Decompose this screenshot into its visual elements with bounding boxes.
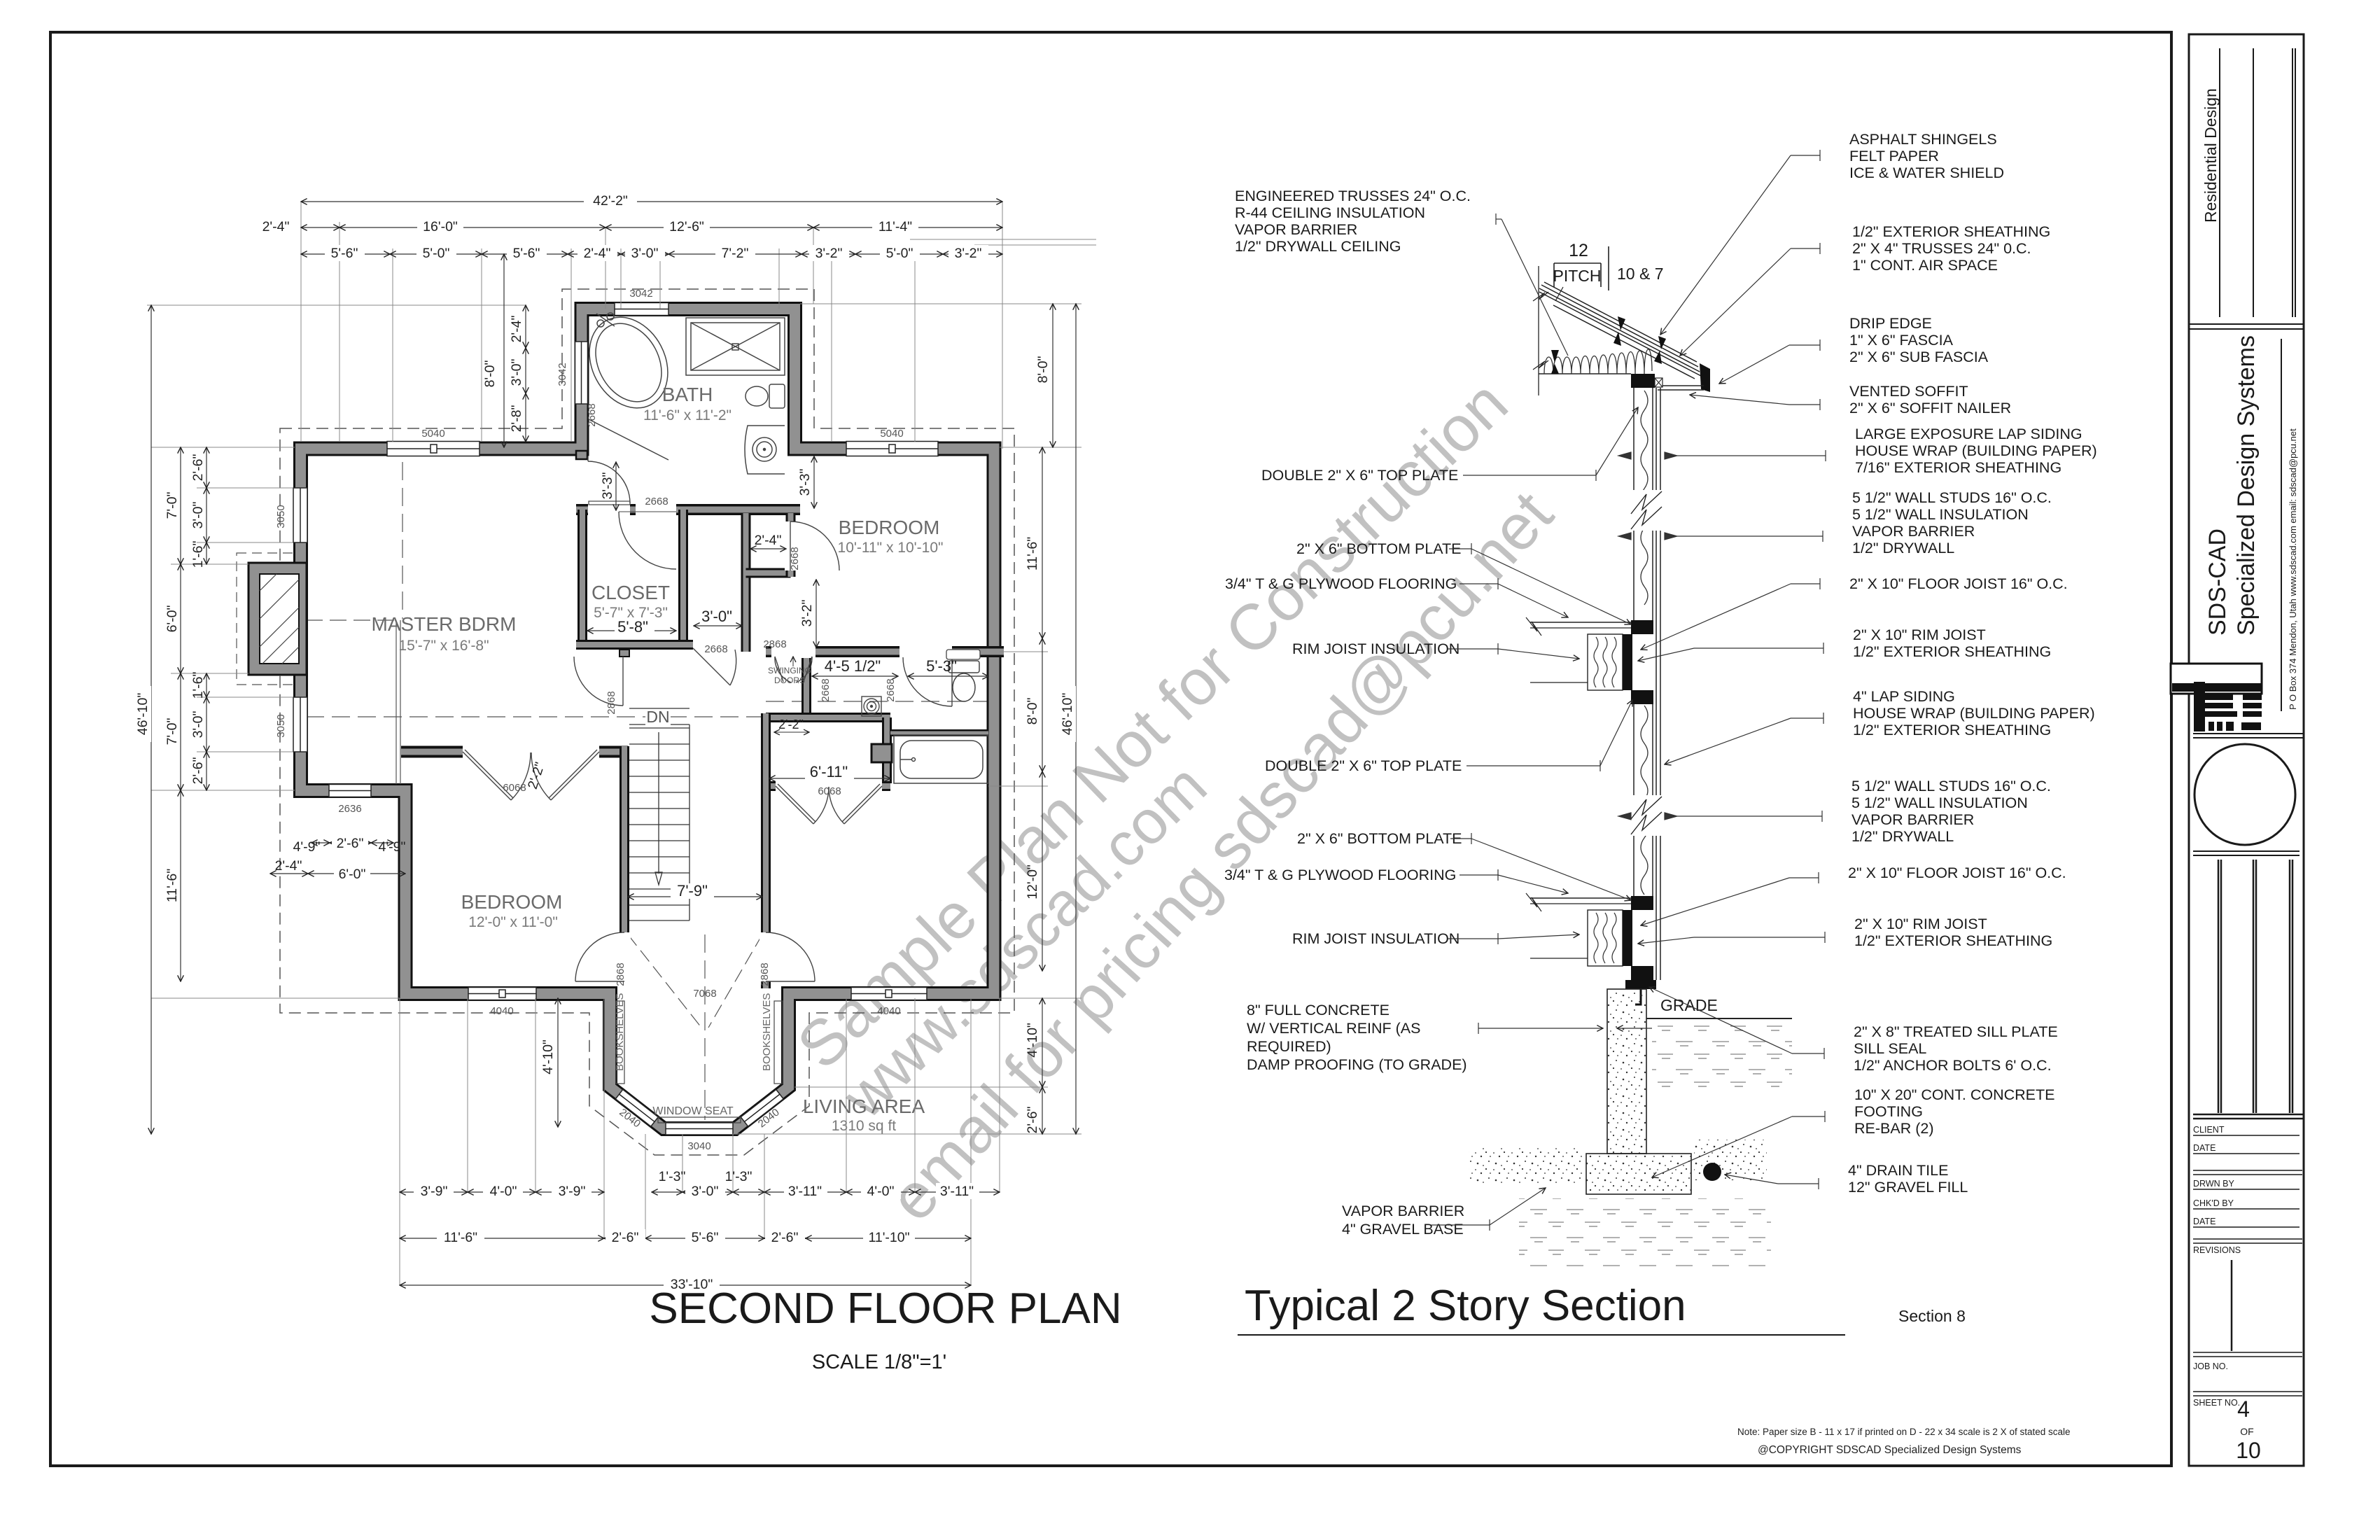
svg-text:2'-6": 2'-6" (337, 836, 364, 851)
svg-text:1'-3": 1'-3" (659, 1169, 686, 1184)
svg-text:2'-2": 2'-2" (525, 760, 548, 791)
svg-text:1/2" EXTERIOR SHEATHING: 1/2" EXTERIOR SHEATHING (1853, 643, 2051, 660)
svg-text:2868: 2868 (615, 962, 626, 986)
svg-text:Specialized Design Systems: Specialized Design Systems (2233, 335, 2260, 636)
svg-text:2'-6": 2'-6" (190, 757, 206, 785)
svg-text:DAMP PROOFING (TO GRADE): DAMP PROOFING (TO GRADE) (1247, 1056, 1467, 1073)
svg-text:8" FULL CONCRETE: 8" FULL CONCRETE (1247, 1002, 1389, 1018)
svg-text:1" CONT. AIR SPACE: 1" CONT. AIR SPACE (1852, 257, 1998, 274)
svg-text:1/2" DRYWALL CEILING: 1/2" DRYWALL CEILING (1235, 238, 1401, 255)
svg-text:3'-11": 3'-11" (940, 1184, 974, 1199)
svg-text:DRIP EDGE: DRIP EDGE (1849, 315, 1932, 332)
svg-text:7'-0": 7'-0" (164, 718, 180, 745)
svg-text:3'-11": 3'-11" (788, 1184, 822, 1199)
svg-text:2" X 6" BOTTOM PLATE: 2" X 6" BOTTOM PLATE (1296, 540, 1462, 557)
svg-text:2'-4": 2'-4" (509, 316, 524, 343)
svg-text:DOORS: DOORS (774, 675, 805, 685)
svg-text:3'-0": 3'-0" (190, 502, 206, 529)
svg-text:3'-0": 3'-0" (701, 608, 732, 625)
svg-text:3'-9": 3'-9" (421, 1184, 448, 1199)
svg-text:2'-2": 2'-2" (778, 717, 804, 731)
svg-text:4'-0": 4'-0" (490, 1184, 517, 1199)
svg-text:RIM JOIST INSULATION: RIM JOIST INSULATION (1292, 930, 1459, 947)
svg-text:1/2" EXTERIOR SHEATHING: 1/2" EXTERIOR SHEATHING (1853, 722, 2051, 738)
svg-text:46'-10": 46'-10" (1060, 693, 1075, 736)
svg-text:2'-4": 2'-4" (755, 533, 782, 548)
svg-text:VAPOR BARRIER: VAPOR BARRIER (1852, 523, 1975, 540)
svg-text:10'-11" x 10'-10": 10'-11" x 10'-10" (838, 540, 944, 556)
svg-text:REQUIRED): REQUIRED) (1247, 1038, 1331, 1055)
svg-text:SWINGING: SWINGING (768, 666, 811, 675)
svg-text:4'-9": 4'-9" (293, 839, 321, 855)
svg-text:W/ VERTICAL REINF (AS: W/ VERTICAL REINF (AS (1247, 1020, 1420, 1037)
svg-text:3'-0": 3'-0" (692, 1184, 719, 1199)
svg-text:1" X 6" FASCIA: 1" X 6" FASCIA (1849, 332, 1954, 349)
svg-text:10: 10 (2236, 1438, 2261, 1463)
svg-text:Residential Design: Residential Design (2201, 88, 2220, 223)
svg-text:3'-0": 3'-0" (509, 359, 524, 386)
svg-text:8'-0": 8'-0" (482, 360, 498, 388)
svg-text:11'-6": 11'-6" (1025, 537, 1040, 570)
svg-text:4" GRAVEL BASE: 4" GRAVEL BASE (1342, 1221, 1464, 1238)
svg-text:3'-2": 3'-2" (815, 246, 843, 261)
svg-text:HOUSE WRAP (BUILDING PAPER): HOUSE WRAP (BUILDING PAPER) (1855, 442, 2097, 459)
svg-text:DN: DN (646, 708, 669, 726)
svg-text:2" X 10" RIM JOIST: 2" X 10" RIM JOIST (1853, 626, 1986, 643)
svg-text:SCALE 1/8"=1': SCALE 1/8"=1' (812, 1351, 946, 1373)
svg-text:SECOND FLOOR PLAN: SECOND FLOOR PLAN (649, 1284, 1121, 1333)
svg-text:RE-BAR (2): RE-BAR (2) (1854, 1120, 1933, 1137)
svg-text:3/4" T & G PLYWOOD FLOORING: 3/4" T & G PLYWOOD FLOORING (1224, 867, 1456, 883)
svg-text:VENTED SOFFIT: VENTED SOFFIT (1849, 383, 1968, 400)
svg-text:SILL SEAL: SILL SEAL (1854, 1040, 1926, 1057)
svg-text:Section 8: Section 8 (1898, 1307, 1966, 1325)
svg-text:SDS-CAD: SDS-CAD (2204, 528, 2231, 636)
svg-text:2'-8": 2'-8" (509, 405, 524, 433)
svg-text:3/4" T & G PLYWOOD FLOORING: 3/4" T & G PLYWOOD FLOORING (1225, 575, 1457, 592)
svg-text:SHEET NO.: SHEET NO. (2193, 1398, 2240, 1408)
svg-text:11'-6" x 11'-2": 11'-6" x 11'-2" (643, 407, 731, 423)
svg-text:3'-0": 3'-0" (190, 711, 206, 738)
svg-text:2'-4": 2'-4" (262, 219, 290, 234)
svg-text:12: 12 (1569, 241, 1588, 260)
svg-text:4" DRAIN TILE: 4" DRAIN TILE (1848, 1162, 1948, 1179)
svg-text:6068: 6068 (818, 785, 841, 797)
svg-text:BEDROOM: BEDROOM (839, 517, 940, 538)
svg-text:6068: 6068 (503, 782, 526, 794)
svg-text:2668: 2668 (885, 678, 897, 701)
svg-text:ENGINEERED TRUSSES 24" O.C.: ENGINEERED TRUSSES 24" O.C. (1235, 188, 1471, 204)
svg-text:1'-6": 1'-6" (190, 672, 206, 699)
svg-text:3'-2": 3'-2" (799, 600, 815, 627)
svg-text:CHK'D BY: CHK'D BY (2193, 1198, 2234, 1208)
svg-text:12" GRAVEL FILL: 12" GRAVEL FILL (1848, 1179, 1968, 1196)
svg-text:4040: 4040 (877, 1005, 900, 1017)
svg-text:R-44 CEILING INSULATION: R-44 CEILING INSULATION (1235, 204, 1425, 221)
svg-text:1/2" ANCHOR BOLTS 6' O.C.: 1/2" ANCHOR BOLTS 6' O.C. (1854, 1057, 2052, 1074)
svg-text:2" X 6" BOTTOM PLATE: 2" X 6" BOTTOM PLATE (1297, 830, 1462, 847)
svg-text:2668: 2668 (645, 496, 668, 507)
svg-text:ASPHALT SHINGELS: ASPHALT SHINGELS (1849, 131, 1997, 148)
svg-text:3040: 3040 (687, 1140, 710, 1152)
svg-text:3'-0": 3'-0" (631, 246, 659, 261)
svg-text:3'-9": 3'-9" (559, 1184, 586, 1199)
svg-text:2'-6": 2'-6" (612, 1230, 639, 1245)
svg-text:JOB NO.: JOB NO. (2193, 1361, 2228, 1371)
svg-text:1310 sq ft: 1310 sq ft (832, 1118, 896, 1134)
svg-text:10" X 20" CONT. CONCRETE: 10" X 20" CONT. CONCRETE (1854, 1086, 2054, 1103)
svg-text:2" X 8" TREATED SILL PLATE: 2" X 8" TREATED SILL PLATE (1854, 1023, 2058, 1040)
svg-text:7/16" EXTERIOR SHEATHING: 7/16" EXTERIOR SHEATHING (1855, 459, 2061, 476)
svg-text:2868: 2868 (759, 962, 771, 986)
svg-text:Typical 2 Story Section: Typical 2 Story Section (1245, 1282, 1686, 1330)
svg-text:7'-0": 7'-0" (164, 492, 180, 519)
svg-text:2" X 10" RIM JOIST: 2" X 10" RIM JOIST (1854, 916, 1987, 932)
svg-text:1/2" EXTERIOR SHEATHING: 1/2" EXTERIOR SHEATHING (1854, 932, 2052, 949)
svg-text:4'-0": 4'-0" (867, 1184, 895, 1199)
svg-text:2668: 2668 (704, 643, 727, 655)
svg-text:6'-0": 6'-0" (164, 605, 180, 633)
svg-text:12'-6": 12'-6" (669, 219, 704, 234)
svg-text:12'-0" x 11'-0": 12'-0" x 11'-0" (468, 914, 558, 930)
svg-text:FOOTING: FOOTING (1854, 1103, 1923, 1120)
svg-text:LARGE EXPOSURE LAP SIDING: LARGE EXPOSURE LAP SIDING (1855, 426, 2082, 442)
svg-text:3050: 3050 (275, 714, 287, 737)
svg-text:BOOKSHELVES: BOOKSHELVES (761, 993, 773, 1071)
svg-text:HOUSE WRAP (BUILDING PAPER): HOUSE WRAP (BUILDING PAPER) (1853, 705, 2095, 722)
svg-text:4'-5 1/2": 4'-5 1/2" (825, 657, 881, 675)
svg-text:3042: 3042 (629, 288, 652, 300)
svg-text:10 & 7: 10 & 7 (1617, 265, 1664, 283)
svg-text:1'-6": 1'-6" (190, 541, 206, 568)
svg-text:DATE: DATE (2193, 1217, 2215, 1226)
svg-text:5'-8": 5'-8" (617, 618, 648, 636)
svg-text:BOOKSHELVES: BOOKSHELVES (614, 993, 626, 1071)
svg-text:2'-4": 2'-4" (275, 858, 302, 874)
svg-text:1/2" DRYWALL: 1/2" DRYWALL (1851, 828, 1954, 845)
svg-text:2'-6": 2'-6" (1025, 1107, 1040, 1134)
svg-text:WINDOW SEAT: WINDOW SEAT (652, 1105, 733, 1117)
svg-text:3050: 3050 (275, 505, 287, 528)
svg-text:5 1/2" WALL INSULATION: 5 1/2" WALL INSULATION (1851, 794, 2028, 811)
svg-text:5'-3": 5'-3" (926, 657, 957, 675)
svg-text:42'-2": 42'-2" (593, 193, 628, 209)
svg-text:2636: 2636 (338, 803, 361, 815)
svg-text:46'-10": 46'-10" (135, 693, 150, 736)
svg-text:REVISIONS: REVISIONS (2193, 1245, 2241, 1255)
svg-text:VAPOR BARRIER: VAPOR BARRIER (1235, 221, 1357, 238)
svg-text:11'-10": 11'-10" (868, 1230, 909, 1245)
svg-text:CLIENT: CLIENT (2193, 1125, 2225, 1135)
svg-text:1/2" EXTERIOR SHEATHING: 1/2" EXTERIOR SHEATHING (1852, 223, 2050, 240)
svg-text:2868: 2868 (605, 691, 617, 714)
svg-text:5'-6": 5'-6" (331, 246, 358, 261)
svg-text:P O Box 374 Mendon, Utah www: P O Box 374 Mendon, Utah www.sdscad.com … (2288, 428, 2298, 710)
svg-text:DOUBLE 2" X 6" TOP PLATE: DOUBLE 2" X 6" TOP PLATE (1261, 467, 1458, 484)
svg-text:5 1/2" WALL STUDS 16" O.C.: 5 1/2" WALL STUDS 16" O.C. (1851, 778, 2051, 794)
svg-text:33'-10": 33'-10" (671, 1277, 713, 1292)
svg-text:1'-3": 1'-3" (725, 1169, 752, 1184)
svg-text:LIVING AREA: LIVING AREA (803, 1095, 925, 1117)
svg-text:3'-2": 3'-2" (955, 246, 982, 261)
svg-text:2668: 2668 (820, 678, 832, 701)
svg-text:5040: 5040 (880, 428, 903, 440)
svg-text:5'-6": 5'-6" (692, 1230, 719, 1245)
svg-text:4: 4 (2237, 1396, 2250, 1422)
svg-text:5 1/2" WALL INSULATION: 5 1/2" WALL INSULATION (1852, 506, 2029, 523)
svg-text:2" X 10" FLOOR JOIST 16" O.C.: 2" X 10" FLOOR JOIST 16" O.C. (1848, 864, 2066, 881)
svg-text:BATH: BATH (662, 384, 713, 405)
svg-text:2" X 10" FLOOR JOIST 16" O.C.: 2" X 10" FLOOR JOIST 16" O.C. (1849, 575, 2068, 592)
svg-text:15'-7" x 16'-8": 15'-7" x 16'-8" (398, 638, 489, 654)
svg-text:ICE & WATER SHIELD: ICE & WATER SHIELD (1849, 164, 2004, 181)
svg-text:OF: OF (2240, 1426, 2253, 1437)
svg-text:2668: 2668 (789, 547, 801, 570)
svg-text:7068: 7068 (693, 988, 716, 1000)
svg-text:2'-4": 2'-4" (584, 246, 611, 261)
svg-text:DATE: DATE (2193, 1143, 2215, 1153)
svg-text:11'-6": 11'-6" (444, 1230, 477, 1245)
svg-text:3'-3": 3'-3" (797, 469, 813, 496)
svg-text:2'-6": 2'-6" (771, 1230, 799, 1245)
svg-text:2" X 6" SUB FASCIA: 2" X 6" SUB FASCIA (1849, 349, 1989, 365)
svg-text:Note: Paper size B - 11 x 17 i: Note: Paper size B - 11 x 17 if printed … (1737, 1427, 2071, 1437)
svg-text:7'-2": 7'-2" (722, 246, 749, 261)
svg-text:5'-0": 5'-0" (886, 246, 913, 261)
svg-text:5'-6": 5'-6" (513, 246, 540, 261)
svg-text:VAPOR BARRIER: VAPOR BARRIER (1851, 811, 1974, 828)
svg-text:6'-0": 6'-0" (339, 867, 366, 882)
svg-text:2668: 2668 (586, 403, 598, 426)
svg-text:2'-6": 2'-6" (190, 454, 206, 482)
svg-text:BEDROOM: BEDROOM (461, 891, 563, 913)
svg-text:@COPYRIGHT SDSCAD Specialized: @COPYRIGHT SDSCAD Specialized Design Sys… (1758, 1444, 2022, 1456)
svg-text:VAPOR BARRIER: VAPOR BARRIER (1342, 1203, 1464, 1219)
svg-text:4040: 4040 (490, 1005, 513, 1017)
svg-text:6'-11": 6'-11" (810, 763, 848, 780)
svg-text:DRWN BY: DRWN BY (2193, 1179, 2234, 1189)
svg-text:1/2" DRYWALL: 1/2" DRYWALL (1852, 540, 1954, 556)
svg-text:MASTER BDRM: MASTER BDRM (372, 613, 517, 635)
svg-text:8'-0": 8'-0" (1025, 698, 1040, 725)
svg-text:4'-10": 4'-10" (540, 1039, 556, 1074)
svg-text:3042: 3042 (556, 363, 568, 386)
svg-text:8'-0": 8'-0" (1035, 356, 1051, 384)
svg-text:12'-0": 12'-0" (1025, 864, 1040, 899)
svg-text:RIM JOIST INSULATION: RIM JOIST INSULATION (1292, 640, 1459, 657)
svg-text:DOUBLE 2" X 6" TOP PLATE: DOUBLE 2" X 6" TOP PLATE (1265, 757, 1462, 774)
svg-text:2" X 4" TRUSSES 24" 0.C.: 2" X 4" TRUSSES 24" 0.C. (1852, 240, 2031, 257)
svg-text:16'-0": 16'-0" (423, 219, 458, 234)
svg-text:5 1/2" WALL STUDS 16" O.C.: 5 1/2" WALL STUDS 16" O.C. (1852, 489, 2052, 506)
svg-text:CLOSET: CLOSET (591, 582, 670, 603)
svg-text:7'-9": 7'-9" (677, 882, 708, 899)
svg-text:4'-9": 4'-9" (379, 839, 406, 855)
svg-text:4" LAP SIDING: 4" LAP SIDING (1853, 688, 1955, 705)
svg-text:11'-4": 11'-4" (878, 219, 912, 234)
svg-text:5'-0": 5'-0" (423, 246, 450, 261)
svg-text:11'-6": 11'-6" (164, 869, 180, 902)
svg-text:2" X 6" SOFFIT NAILER: 2" X 6" SOFFIT NAILER (1849, 400, 2011, 416)
svg-text:5040: 5040 (421, 428, 444, 440)
svg-text:3'-3": 3'-3" (600, 472, 615, 500)
svg-text:4'-10": 4'-10" (1025, 1023, 1040, 1058)
svg-text:2868: 2868 (763, 638, 786, 650)
svg-text:FELT PAPER: FELT PAPER (1849, 148, 1939, 164)
svg-text:PITCH: PITCH (1553, 267, 1602, 285)
